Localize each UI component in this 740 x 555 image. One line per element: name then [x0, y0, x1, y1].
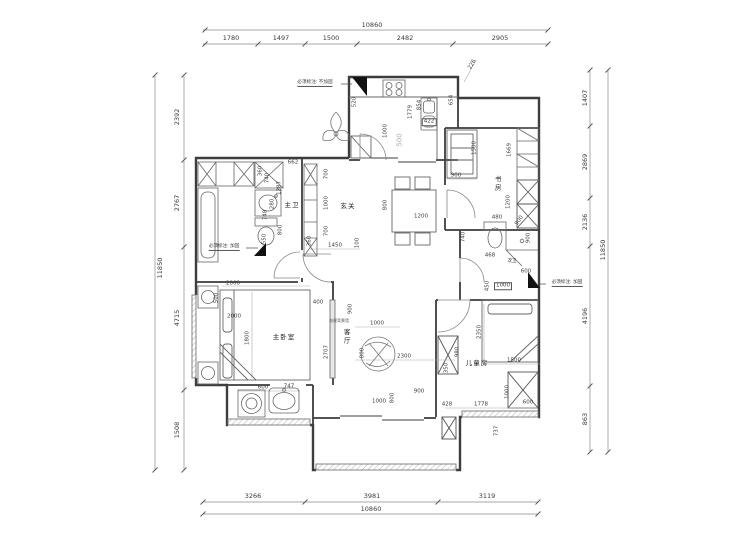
dim-label: 400: [313, 300, 324, 306]
dim-label: 800: [360, 348, 366, 359]
dim-label: 900: [414, 389, 425, 395]
dim-label: 1500: [507, 358, 521, 364]
dim-label: 100: [355, 238, 361, 249]
dim-label: 737: [494, 426, 500, 437]
dim-label: 3119: [479, 493, 496, 500]
dim-label: 747: [284, 384, 295, 390]
dim-label: 2000: [227, 314, 241, 320]
dim-label: 740: [265, 173, 271, 184]
dim-label: 800: [278, 225, 284, 236]
dim-label: 1508: [174, 422, 181, 439]
dim-label: 2350: [477, 325, 483, 339]
dim-label: 10860: [362, 22, 383, 29]
dim-label: 2392: [174, 109, 181, 126]
dim-label: 900: [451, 173, 462, 179]
dim-label: 电视背景墙: [329, 319, 349, 323]
dim-label: 900: [348, 304, 354, 315]
dim-label: 500: [397, 133, 404, 146]
dim-label: 800: [390, 393, 396, 404]
dim-label: 3981: [364, 493, 381, 500]
dim-label: 800: [383, 200, 389, 211]
dim-label: 2136: [582, 214, 589, 231]
dim-label: 1780: [223, 35, 240, 42]
dim-label: 748: [263, 210, 269, 221]
room-label-kids-room: 儿童房: [466, 360, 489, 367]
dim-label: 11850: [157, 258, 164, 279]
dim-label: 654: [449, 95, 455, 106]
dim-label: 740: [461, 232, 467, 243]
dim-label: 1778: [474, 402, 488, 408]
dim-label: 3266: [245, 493, 262, 500]
floor-plan: 1086017801497150024822905326639813119108…: [0, 0, 740, 555]
dim-label: 360: [258, 166, 264, 177]
dim-label: 480: [492, 215, 503, 221]
room-label-living-room: 客厅: [343, 329, 350, 346]
dim-label: 1000: [494, 282, 512, 290]
dim-label: 1779: [408, 105, 414, 119]
dim-label: 600: [258, 385, 269, 391]
room-label-entry: 玄关: [341, 203, 356, 210]
dim-label: 980: [455, 347, 461, 358]
dim-label: 1000: [505, 385, 511, 399]
note-reinforce-left: 必须标注: 加固: [209, 245, 240, 251]
room-label-master-bedroom: 主卧室: [273, 334, 296, 341]
dim-label: 450: [485, 281, 491, 292]
dim-label: 1500: [323, 35, 340, 42]
dim-label: 1800: [245, 331, 251, 345]
dim-label: 1200: [506, 195, 512, 209]
dim-label: 854: [417, 100, 423, 111]
dim-label: 226: [468, 59, 478, 71]
dim-label: 10860: [361, 506, 382, 513]
dim-label: 1000: [370, 321, 384, 327]
dim-label: 2905: [492, 35, 509, 42]
dim-label: 1000: [372, 399, 386, 405]
dim-label: 1000: [383, 124, 389, 138]
dim-label: 2869: [582, 154, 589, 171]
dim-label: 1450: [328, 243, 342, 249]
dimension-labels-layer: 1086017801497150024822905326639813119108…: [0, 0, 740, 555]
dim-label: 1500: [472, 141, 478, 155]
room-label-second-bath: 次卫: [508, 260, 517, 265]
dim-label: 1497: [273, 35, 290, 42]
dim-label: 863: [582, 413, 589, 425]
dim-label: 1000: [324, 196, 330, 210]
dim-label: 4196: [582, 308, 589, 325]
dim-label: 11850: [600, 240, 607, 261]
dim-label: 2707: [324, 345, 330, 359]
dim-label: 600: [523, 400, 534, 406]
dim-label: 360: [307, 236, 313, 247]
dim-label: 2482: [397, 35, 414, 42]
room-label-master-bath: 主卫: [285, 202, 300, 209]
dim-label: 2767: [174, 195, 181, 212]
note-reinforce-right: 必须标注: 加固: [552, 281, 583, 287]
dim-label: 550: [262, 234, 268, 245]
note-no-reinforce: 必须标注: 不加固: [297, 81, 332, 87]
dim-label: 700: [324, 226, 330, 237]
dim-label: 1287: [277, 181, 283, 195]
dim-label: 428: [442, 402, 453, 408]
dim-label: 280: [270, 199, 276, 210]
dim-label: 500: [214, 293, 220, 304]
dim-label: 1200: [414, 214, 428, 220]
dim-label: 700: [324, 169, 330, 180]
dim-label: 900: [515, 215, 526, 227]
dim-label: 1407: [582, 90, 589, 107]
dim-label: 1669: [507, 143, 513, 157]
room-label-study: 书房: [494, 176, 501, 193]
dim-label: 4715: [174, 310, 181, 327]
dim-label: 900: [526, 233, 532, 244]
dim-label: 422: [422, 118, 437, 126]
dim-label: 350: [444, 363, 450, 374]
dim-label: 520: [352, 97, 358, 108]
dim-label: 468: [485, 253, 496, 259]
dim-label: 2300: [397, 354, 411, 360]
dim-label: 600: [521, 269, 532, 275]
dim-label: 2000: [226, 281, 240, 287]
dim-label: 662: [288, 160, 299, 166]
